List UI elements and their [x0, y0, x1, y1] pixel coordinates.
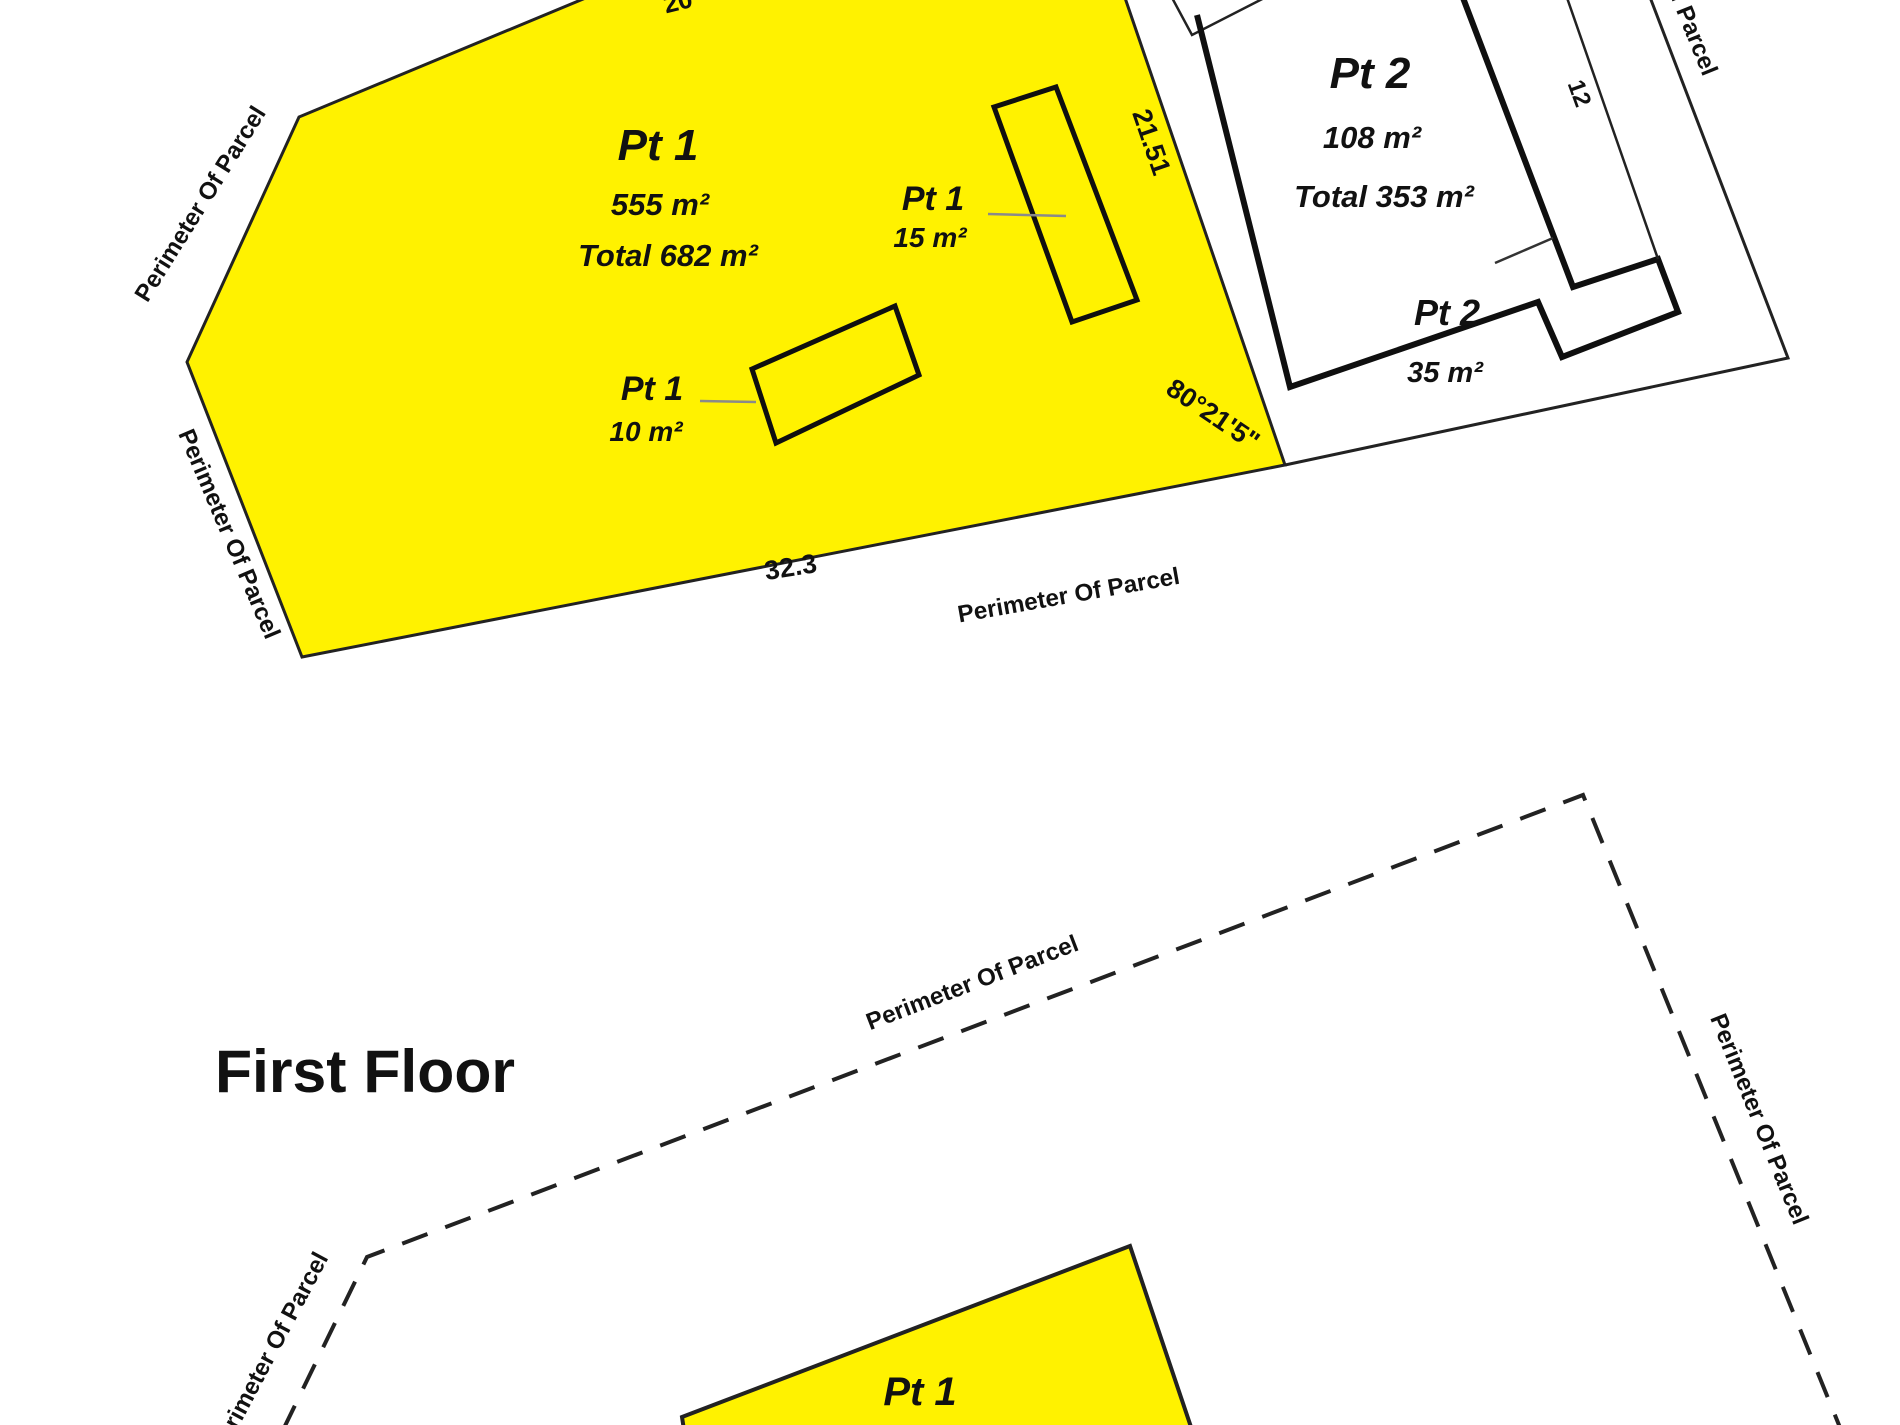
pt1-name-label: Pt 1 — [618, 121, 699, 170]
site-plan-drawing: Pt 1 555 m² Total 682 m² Pt 1 15 m² Pt 1… — [0, 0, 1900, 1425]
outbuilding-15-area-label: 15 m² — [893, 222, 967, 253]
first-floor-perimeter-label-top: Perimeter Of Parcel — [862, 930, 1082, 1036]
perimeter-label-bottom: Perimeter Of Parcel — [956, 563, 1182, 629]
boundary-notch-line — [1170, 0, 1272, 35]
first-floor-perimeter-label-right: Perimeter Of Parcel — [1704, 1010, 1813, 1229]
pt2-area-label: 108 m² — [1323, 120, 1422, 155]
pt2-total-label: Total 353 m² — [1294, 179, 1474, 214]
perimeter-label-top-right-fragment: Perimeter Of Parcel — [1613, 0, 1722, 80]
pt2-part-name-label: Pt 2 — [1414, 292, 1480, 333]
pt1-parcel-shape — [187, 0, 1285, 657]
cadastral-plan-page: Pt 1 555 m² Total 682 m² Pt 1 15 m² Pt 1… — [0, 0, 1900, 1425]
outbuilding-10-area-label: 10 m² — [609, 416, 683, 447]
first-floor-pt1-name-label: Pt 1 — [883, 1370, 956, 1414]
pt2-part-area-label: 35 m² — [1407, 357, 1484, 389]
dim-strip-width: 12 — [1562, 76, 1597, 110]
first-floor-title: First Floor — [215, 1038, 515, 1105]
first-floor-perimeter-label-left-fragment: Perimeter Of Parcel — [205, 1248, 334, 1425]
strip-boundary-line — [1565, 0, 1658, 259]
outbuilding-15-name-label: Pt 1 — [902, 180, 964, 218]
outbuilding-10-name-label: Pt 1 — [621, 370, 683, 408]
pt1-total-label: Total 682 m² — [578, 238, 758, 273]
leader-line-35 — [1495, 238, 1553, 263]
leader-line-10 — [700, 401, 756, 402]
pt2-name-label: Pt 2 — [1330, 49, 1411, 98]
pt1-area-label: 555 m² — [611, 187, 710, 222]
